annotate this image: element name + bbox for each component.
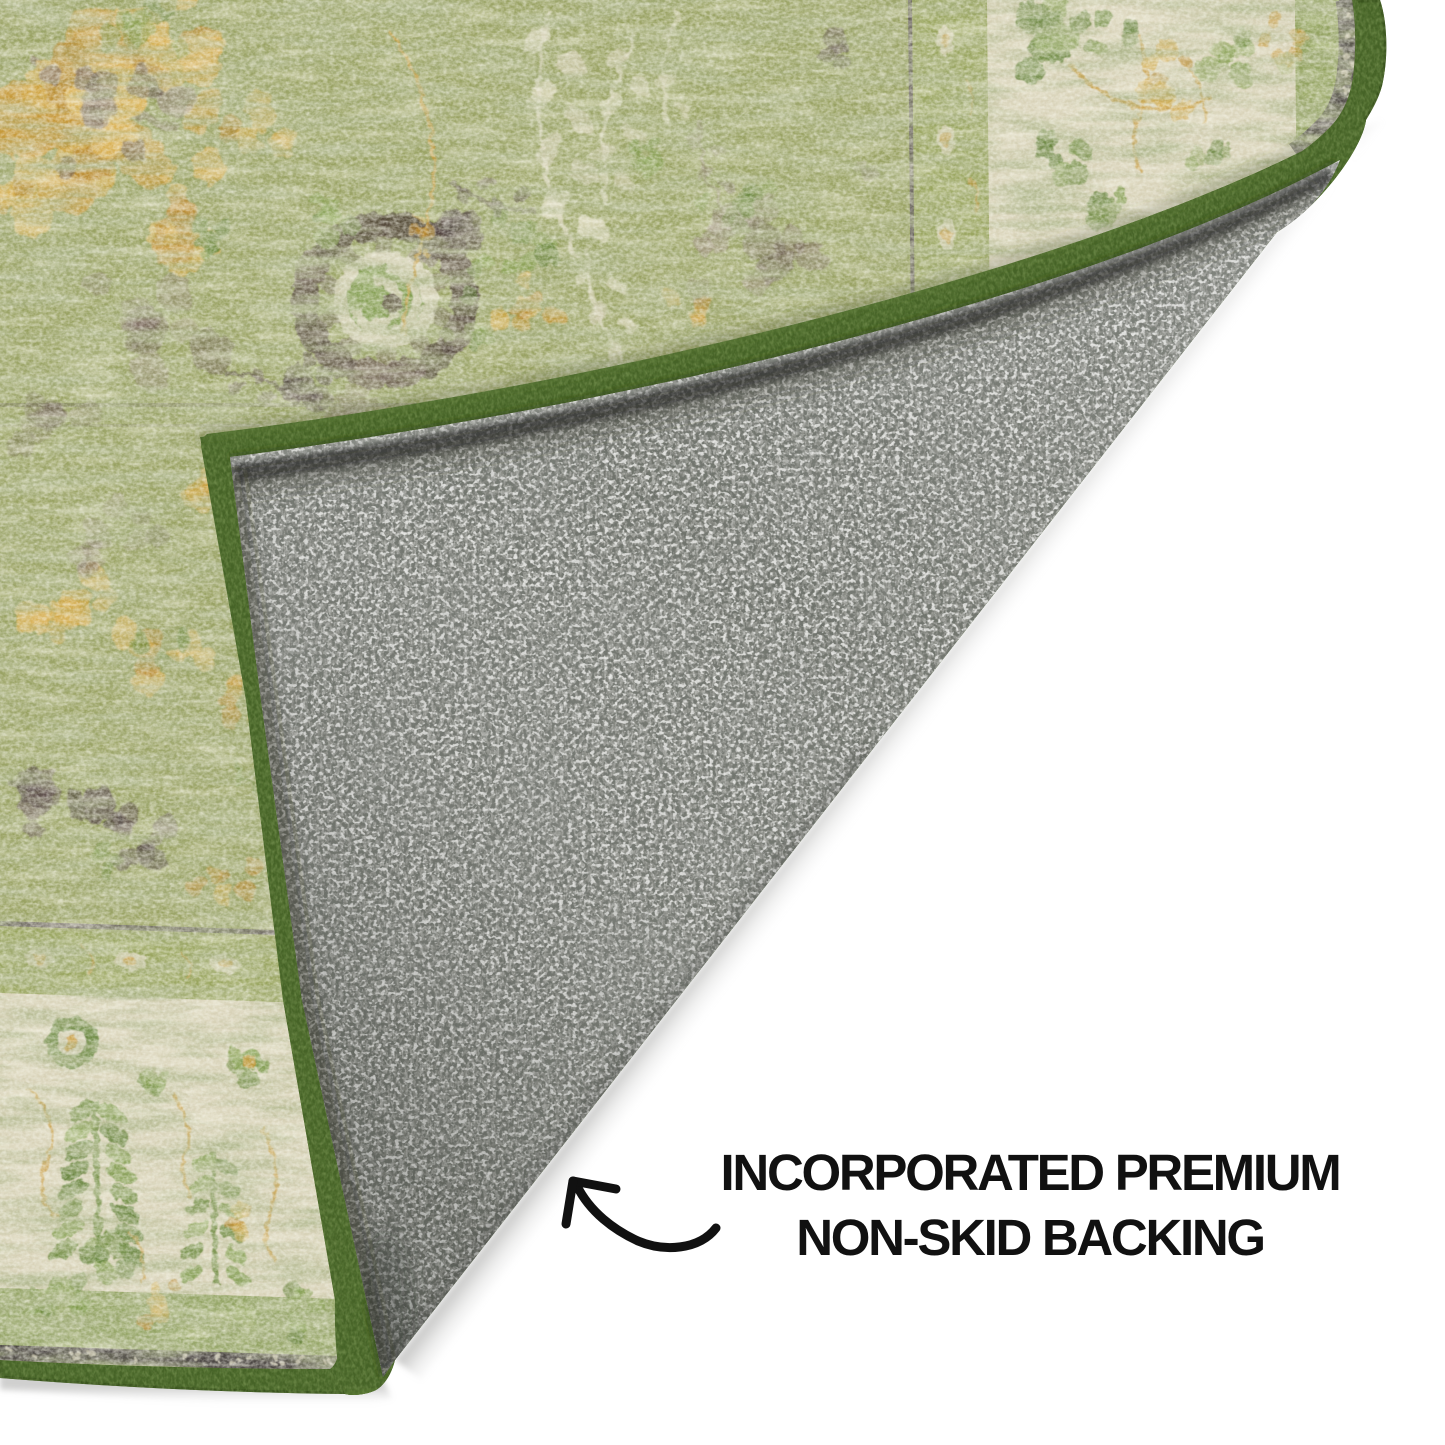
svg-text:INCORPORATED PREMIUM: INCORPORATED PREMIUM: [721, 1144, 1340, 1201]
svg-text:NON-SKID BACKING: NON-SKID BACKING: [796, 1209, 1264, 1266]
